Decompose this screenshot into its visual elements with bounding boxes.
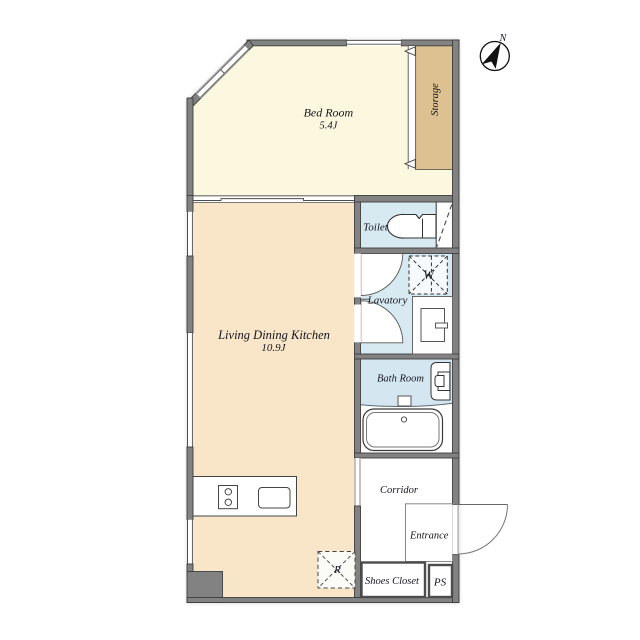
svg-text:W: W <box>423 268 435 282</box>
svg-text:Lavatory: Lavatory <box>367 295 408 307</box>
svg-text:5.4J: 5.4J <box>320 121 339 132</box>
svg-text:Entrance: Entrance <box>409 531 449 542</box>
svg-text:10.9J: 10.9J <box>261 342 286 354</box>
svg-text:N: N <box>499 33 508 44</box>
svg-text:Living Dining Kitchen: Living Dining Kitchen <box>217 328 330 342</box>
svg-text:R: R <box>333 564 341 576</box>
svg-text:Storage: Storage <box>430 83 441 116</box>
svg-text:Toilet: Toilet <box>363 221 389 233</box>
svg-text:Bed Room: Bed Room <box>304 106 354 120</box>
svg-text:PS: PS <box>433 577 447 589</box>
svg-text:Shoes Closet: Shoes Closet <box>365 576 420 587</box>
svg-text:Corridor: Corridor <box>380 485 419 496</box>
svg-text:Bath Room: Bath Room <box>377 374 424 385</box>
